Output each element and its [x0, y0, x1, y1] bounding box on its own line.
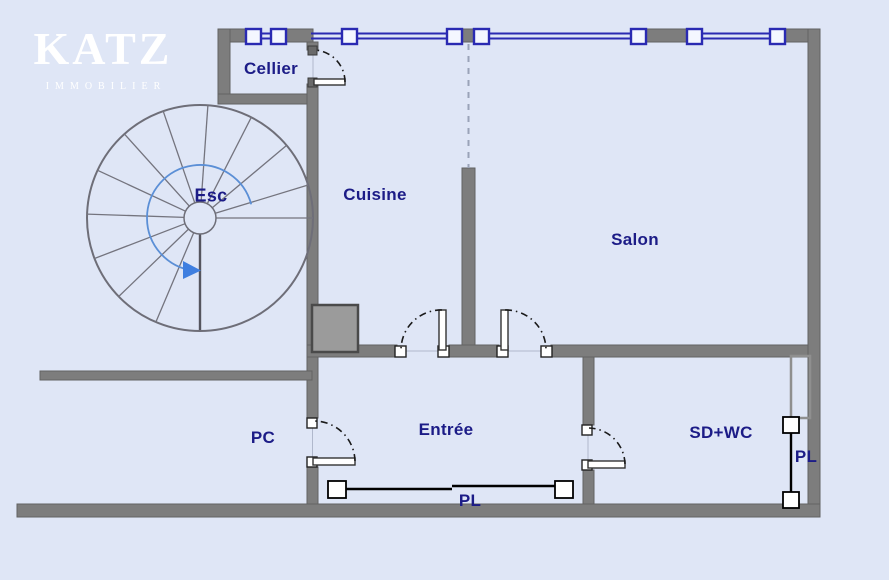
- room-label-pl-entree: PL: [459, 491, 481, 511]
- floor-plan: KATZ IMMOBILIER Cellier Cuisine Salon Es…: [0, 0, 889, 580]
- door-leaf: [313, 458, 355, 465]
- door-cellier: [308, 46, 345, 87]
- door-salon: [497, 310, 552, 357]
- room-label-pl-sdwc: PL: [795, 447, 817, 467]
- room-label-esc: Esc: [195, 186, 228, 207]
- spiral-staircase: [87, 105, 313, 331]
- walls: [17, 29, 820, 517]
- door-leaf: [439, 310, 446, 350]
- brand-logo: KATZ IMMOBILIER: [28, 26, 178, 92]
- door-swing-arc: [505, 310, 546, 350]
- door-swing-arc: [314, 421, 355, 461]
- staircase-hub: [184, 202, 216, 234]
- window-mullion-posts: [246, 29, 785, 44]
- brand-tagline: IMMOBILIER: [28, 81, 178, 92]
- closet-box: [791, 356, 810, 418]
- room-label-entree: Entrée: [419, 420, 474, 440]
- door-sdwc: [582, 425, 625, 470]
- staircase-direction-arrow-icon: [183, 261, 201, 279]
- brand-name: KATZ: [28, 26, 178, 72]
- door-entree: [307, 418, 355, 467]
- room-label-salon: Salon: [611, 230, 659, 250]
- door-swing-arc: [401, 310, 442, 350]
- door-leaf: [588, 461, 625, 468]
- sliding-closet-entree: [328, 481, 573, 498]
- duct-block: [312, 305, 358, 352]
- sliding-closet-sdwc: [783, 356, 810, 508]
- room-label-sdwc: SD+WC: [689, 423, 752, 443]
- room-label-cuisine: Cuisine: [343, 185, 407, 205]
- room-label-pc: PC: [251, 428, 275, 448]
- door-leaf: [314, 79, 345, 85]
- door-swing-arc: [314, 50, 345, 82]
- room-label-cellier: Cellier: [244, 59, 298, 79]
- door-leaf: [501, 310, 508, 350]
- door-cuisine: [395, 310, 449, 357]
- door-swing-arc: [589, 428, 625, 464]
- window-band: [246, 29, 785, 44]
